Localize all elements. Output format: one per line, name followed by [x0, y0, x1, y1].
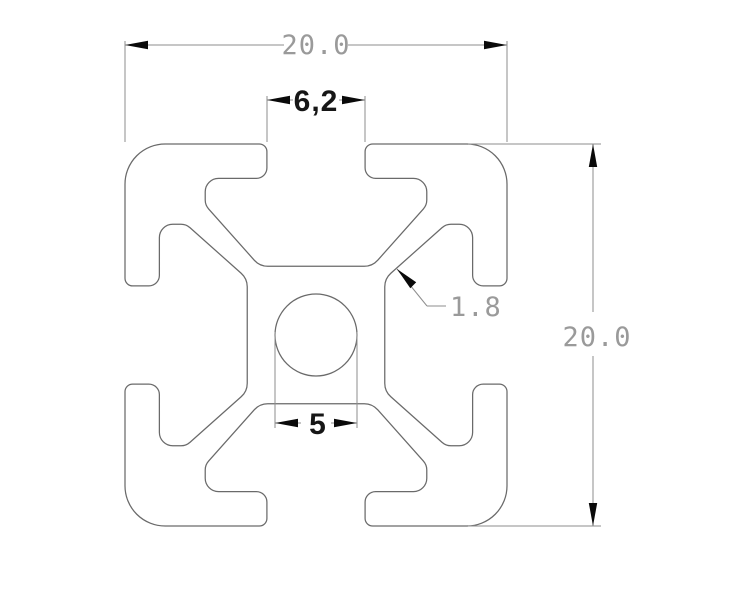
- dimension-arrowhead: [342, 96, 365, 104]
- dimension-arrowhead: [397, 269, 416, 288]
- profile-section: [125, 144, 507, 526]
- dimension-arrowhead: [334, 419, 357, 427]
- dimension-arrowhead: [484, 41, 507, 49]
- dimension-arrowhead: [125, 41, 148, 49]
- dimension-arrowhead: [275, 419, 298, 427]
- dim-overall-width-text: 20.0: [281, 30, 350, 61]
- dim-overall-height-text: 20.0: [562, 322, 631, 353]
- dim-wall-thickness-text: 1.8: [450, 292, 502, 323]
- dimension-arrowheads: [125, 41, 597, 526]
- extrusion-profile-drawing: 20.0 6,2 20.0 5 1.8: [0, 0, 750, 600]
- dim-center-bore-text: 5: [309, 408, 327, 441]
- profile-outline: [125, 144, 507, 526]
- dim-slot-opening-text: 6,2: [294, 85, 339, 118]
- technical-drawing-canvas: 20.0 6,2 20.0 5 1.8: [0, 0, 750, 600]
- dimension-arrowhead: [589, 144, 597, 167]
- dimension-lines: [125, 41, 601, 526]
- dimension-arrowhead: [267, 96, 290, 104]
- center-bore-circle: [275, 294, 357, 376]
- dimension-arrowhead: [589, 503, 597, 526]
- dimension-labels: 20.0 6,2 20.0 5 1.8: [281, 30, 631, 441]
